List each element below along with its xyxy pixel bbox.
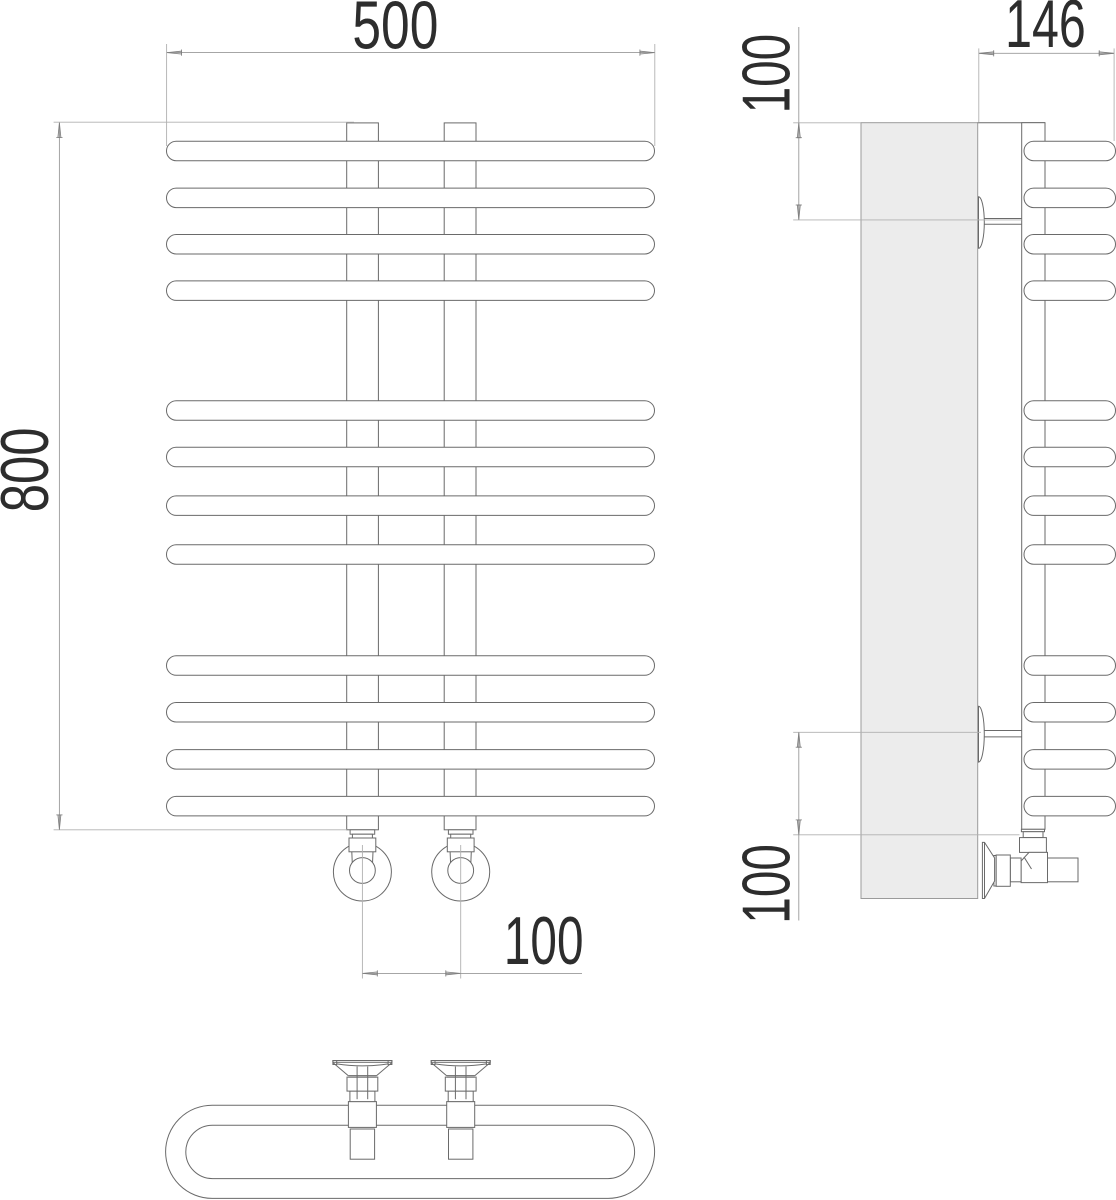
svg-text:100: 100 [729,34,805,114]
svg-text:800: 800 [0,427,63,512]
svg-text:100: 100 [729,844,805,924]
svg-text:146: 146 [1005,0,1086,62]
svg-text:100: 100 [504,903,584,979]
svg-text:500: 500 [352,0,438,64]
